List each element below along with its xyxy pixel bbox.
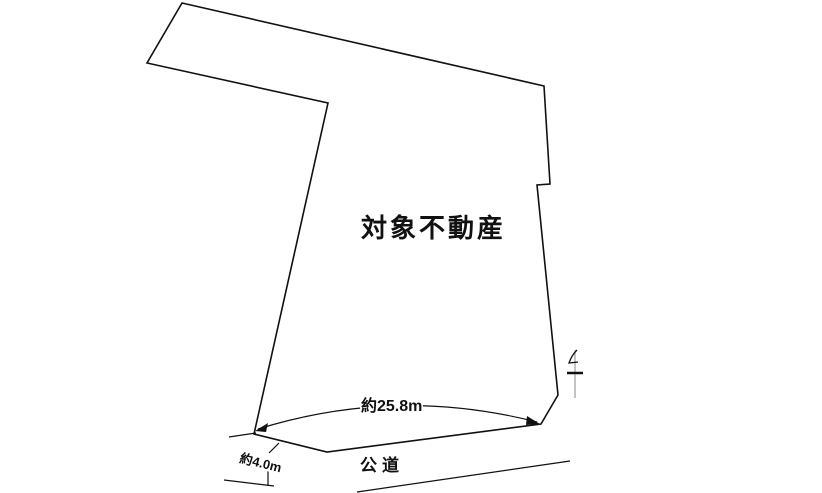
site-plan-canvas: 対象不動産 約25.8m 約4.0m 公道	[0, 0, 822, 493]
frontage-dimension-label: 約25.8m	[360, 399, 423, 415]
site-plan-drawing	[0, 0, 822, 493]
road-width-leader-line	[269, 443, 279, 453]
public-road-label: 公道	[360, 457, 404, 474]
frontage-extension-line	[229, 433, 256, 437]
pole-flag-icon	[569, 350, 578, 363]
property-label: 対象不動産	[361, 215, 506, 241]
road-far-edge-left-segment	[224, 480, 274, 486]
utility-pole-marker	[567, 350, 583, 398]
arc-arrowhead-right-icon	[526, 416, 540, 425]
